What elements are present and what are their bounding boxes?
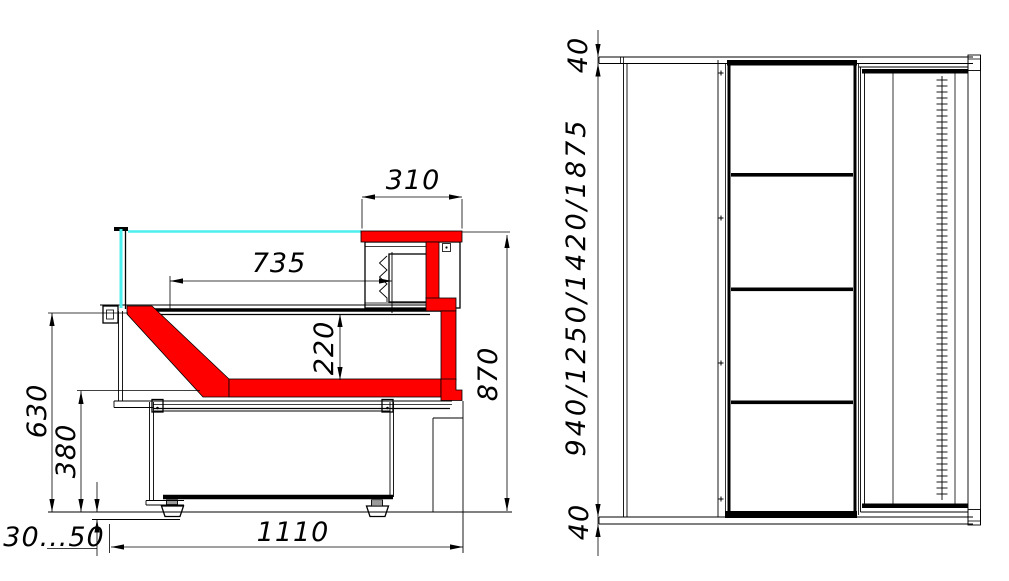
dim-back-height: 870 xyxy=(473,347,504,402)
dim-base-height: 380 xyxy=(51,424,82,479)
dim-bottom-panel: 40 xyxy=(564,504,595,540)
right-edge-frame xyxy=(968,55,981,525)
adjustable-foot-front xyxy=(162,500,184,517)
dim-display-depth: 735 xyxy=(252,248,307,279)
adjustable-foot-back xyxy=(367,500,389,517)
front-bumper xyxy=(103,306,118,323)
rear-panel xyxy=(859,67,969,512)
fastener-marks xyxy=(719,71,724,502)
left-view-section: 310 735 220 870 630 xyxy=(3,165,512,556)
technical-drawing-page: 310 735 220 870 630 xyxy=(0,0,1009,581)
shelf-column xyxy=(719,60,859,518)
right-view-dimensions: 40 940/1250/1420/1875 40 xyxy=(561,30,601,556)
dim-height-variants: 940/1250/1420/1875 xyxy=(561,118,592,457)
display-case-drawing: 310 735 220 870 630 xyxy=(0,0,1009,581)
right-view-elevation: 40 940/1250/1420/1875 40 xyxy=(561,30,981,556)
dim-front-height: 630 xyxy=(22,384,53,439)
dim-leg-adjust: 30...50 xyxy=(3,522,104,553)
base-cabinet xyxy=(146,402,394,505)
dim-top-panel: 40 xyxy=(563,37,594,73)
front-glass xyxy=(121,229,361,308)
dim-well-height: 220 xyxy=(309,321,340,376)
dim-canopy-depth: 310 xyxy=(386,165,441,196)
elevation-structure xyxy=(599,55,981,525)
dim-overall-depth: 1110 xyxy=(257,517,330,548)
